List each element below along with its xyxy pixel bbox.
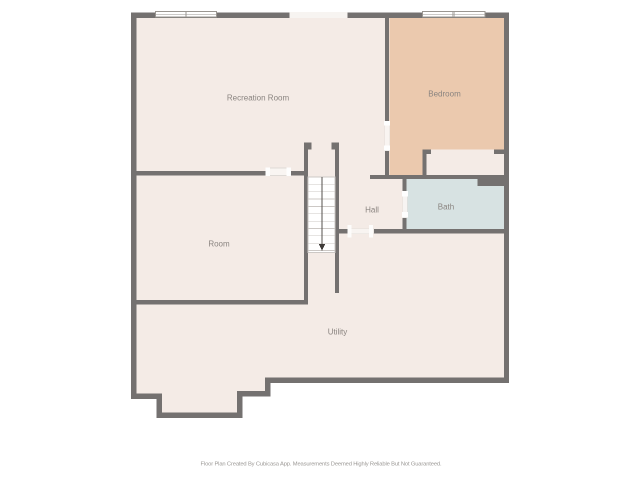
svg-text:Recreation Room: Recreation Room xyxy=(227,93,290,102)
svg-text:Hall: Hall xyxy=(365,205,379,214)
svg-text:Room: Room xyxy=(208,239,230,248)
svg-text:Floor Plan Created By Cubicasa: Floor Plan Created By Cubicasa App. Meas… xyxy=(201,461,442,467)
svg-text:Bedroom: Bedroom xyxy=(428,89,461,98)
svg-text:Utility: Utility xyxy=(328,327,348,336)
svg-text:Bath: Bath xyxy=(438,202,454,211)
